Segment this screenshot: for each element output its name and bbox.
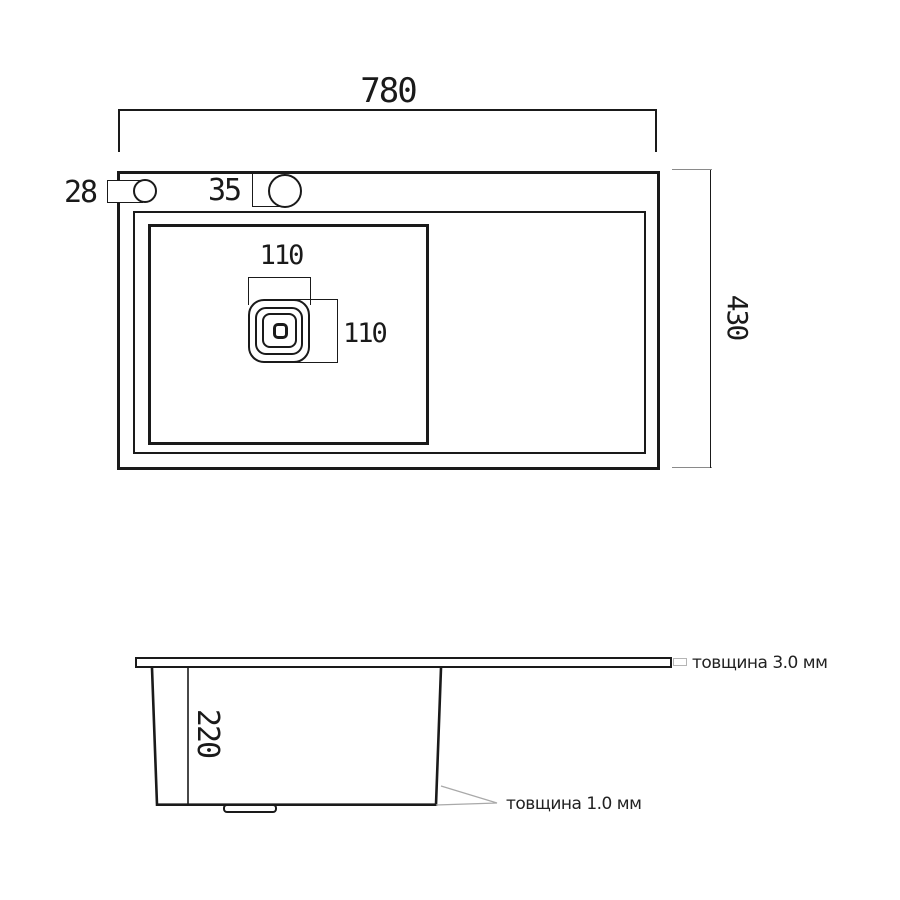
side-plate — [135, 657, 672, 668]
sink-technical-drawing: 780 28 35 110 110 430 — [0, 0, 900, 900]
rim-thickness-label: товщина 3.0 мм — [692, 653, 827, 673]
drain-stub — [223, 804, 277, 813]
dim-220-label: 220 — [191, 697, 223, 769]
rim-thickness-box — [673, 658, 687, 666]
side-view-lines — [0, 0, 900, 900]
wall-thickness-leader-lines — [436, 786, 497, 805]
wall-thickness-label: товщина 1.0 мм — [506, 794, 641, 814]
side-view: 220 товщина 3.0 мм товщина 1.0 мм — [0, 0, 900, 900]
